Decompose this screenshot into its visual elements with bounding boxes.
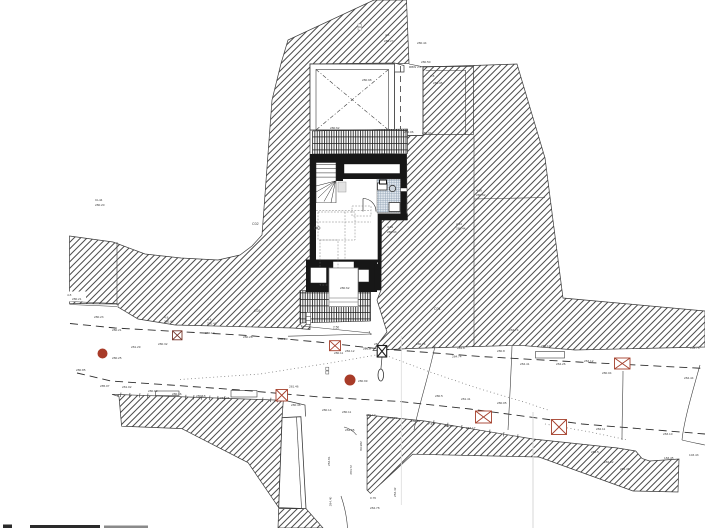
svg-text:282.12: 282.12	[345, 349, 355, 353]
svg-text:282.52: 282.52	[604, 460, 614, 464]
svg-text:C02: C02	[252, 222, 259, 226]
svg-text:4.8: 4.8	[67, 293, 72, 297]
svg-text:280.74: 280.74	[416, 342, 426, 346]
svg-text:282.11: 282.11	[596, 427, 606, 431]
svg-text:284.26: 284.26	[556, 362, 566, 366]
svg-text:280.27: 280.27	[384, 39, 394, 43]
svg-text:4.99: 4.99	[476, 189, 482, 193]
svg-text:281.32: 281.32	[388, 416, 398, 420]
svg-text:280.20: 280.20	[95, 203, 105, 207]
svg-text:284.41: 284.41	[520, 362, 530, 366]
svg-text:280.44: 280.44	[417, 41, 427, 45]
svg-text:280.50: 280.50	[421, 60, 431, 64]
svg-text:280.21: 280.21	[112, 328, 122, 332]
svg-text:280.8: 280.8	[497, 349, 505, 353]
svg-text:280.52: 280.52	[476, 193, 486, 197]
svg-text:280.41: 280.41	[207, 322, 217, 326]
svg-text:280.16: 280.16	[172, 392, 182, 396]
svg-text:280.23: 280.23	[94, 315, 104, 319]
svg-text:281.46: 281.46	[289, 385, 299, 389]
svg-text:280.62: 280.62	[340, 286, 350, 290]
svg-text:280.62: 280.62	[330, 126, 340, 130]
svg-text:280.12: 280.12	[148, 389, 158, 393]
svg-text:285.07: 285.07	[100, 384, 110, 388]
svg-text:280.46: 280.46	[291, 403, 301, 407]
svg-text:281.36: 281.36	[220, 396, 230, 400]
svg-text:280.8: 280.8	[363, 347, 371, 351]
svg-text:280.44: 280.44	[456, 227, 466, 231]
svg-text:280.43: 280.43	[387, 230, 397, 234]
svg-text:280.05: 280.05	[497, 401, 507, 405]
svg-text:283.5: 283.5	[591, 450, 599, 454]
svg-text:281.02: 281.02	[122, 385, 132, 389]
svg-text:284.65: 284.65	[345, 428, 355, 432]
svg-text:280.26: 280.26	[243, 335, 253, 339]
svg-text:CL44: CL44	[95, 198, 103, 202]
svg-text:282.46: 282.46	[444, 424, 454, 428]
svg-text:283.10: 283.10	[663, 432, 673, 436]
svg-text:280.14: 280.14	[322, 408, 332, 412]
svg-text:280.11: 280.11	[342, 410, 352, 414]
svg-text:280.42: 280.42	[411, 419, 421, 423]
svg-text:2.50: 2.50	[333, 326, 339, 330]
svg-text:284.12: 284.12	[584, 359, 594, 363]
svg-text:2.8: 2.8	[430, 74, 435, 78]
svg-text:280.32: 280.32	[158, 342, 168, 346]
svg-text:284.78: 284.78	[370, 506, 380, 510]
svg-text:280.06: 280.06	[404, 130, 414, 134]
svg-text:280.34: 280.34	[422, 131, 432, 135]
svg-text:284.42: 284.42	[393, 487, 397, 497]
svg-text:284.72: 284.72	[349, 465, 353, 475]
svg-text:280.20: 280.20	[278, 337, 288, 341]
svg-text:280.25: 280.25	[112, 356, 122, 360]
svg-text:281: 281	[374, 342, 379, 346]
svg-text:280.98: 280.98	[362, 78, 372, 82]
svg-text:280.10: 280.10	[205, 331, 215, 335]
svg-text:280.04: 280.04	[602, 371, 612, 375]
svg-text:284.74: 284.74	[452, 355, 462, 359]
svg-text:89.982: 89.982	[359, 441, 363, 451]
svg-text:284.44: 284.44	[684, 376, 694, 380]
svg-text:4.8: 4.8	[385, 33, 390, 37]
svg-text:281.8: 281.8	[457, 346, 465, 350]
svg-text:280.21: 280.21	[72, 297, 82, 301]
svg-text:280.45: 280.45	[433, 81, 443, 85]
svg-text:283.17: 283.17	[466, 426, 476, 430]
svg-text:284.74: 284.74	[509, 328, 519, 332]
svg-text:103.75: 103.75	[690, 346, 700, 350]
svg-text:4.99: 4.99	[387, 225, 393, 229]
svg-text:C01: C01	[434, 307, 441, 311]
svg-text:280.17: 280.17	[541, 344, 551, 348]
svg-text:280.11: 280.11	[334, 351, 344, 355]
svg-text:280.18: 280.18	[196, 394, 206, 398]
svg-text:284.40: 284.40	[329, 496, 333, 506]
svg-text:C01: C01	[254, 309, 261, 313]
svg-text:280.42: 280.42	[164, 320, 174, 324]
svg-text:280.12: 280.12	[366, 413, 376, 417]
svg-text:280.99: 280.99	[358, 379, 368, 383]
svg-text:103.43: 103.43	[689, 453, 699, 457]
svg-text:281.41: 281.41	[461, 397, 471, 401]
svg-text:RBW 2.8: RBW 2.8	[409, 65, 422, 69]
svg-text:0.76: 0.76	[370, 496, 376, 500]
svg-text:284.81: 284.81	[327, 456, 331, 466]
svg-text:284.46: 284.46	[620, 467, 630, 471]
svg-text:280.85: 280.85	[76, 368, 86, 372]
svg-text:281.29: 281.29	[131, 345, 141, 349]
svg-text:7.63: 7.63	[428, 422, 434, 426]
svg-text:2.44: 2.44	[456, 222, 462, 226]
svg-text:280.5: 280.5	[435, 394, 443, 398]
svg-text:183.45: 183.45	[664, 456, 674, 460]
